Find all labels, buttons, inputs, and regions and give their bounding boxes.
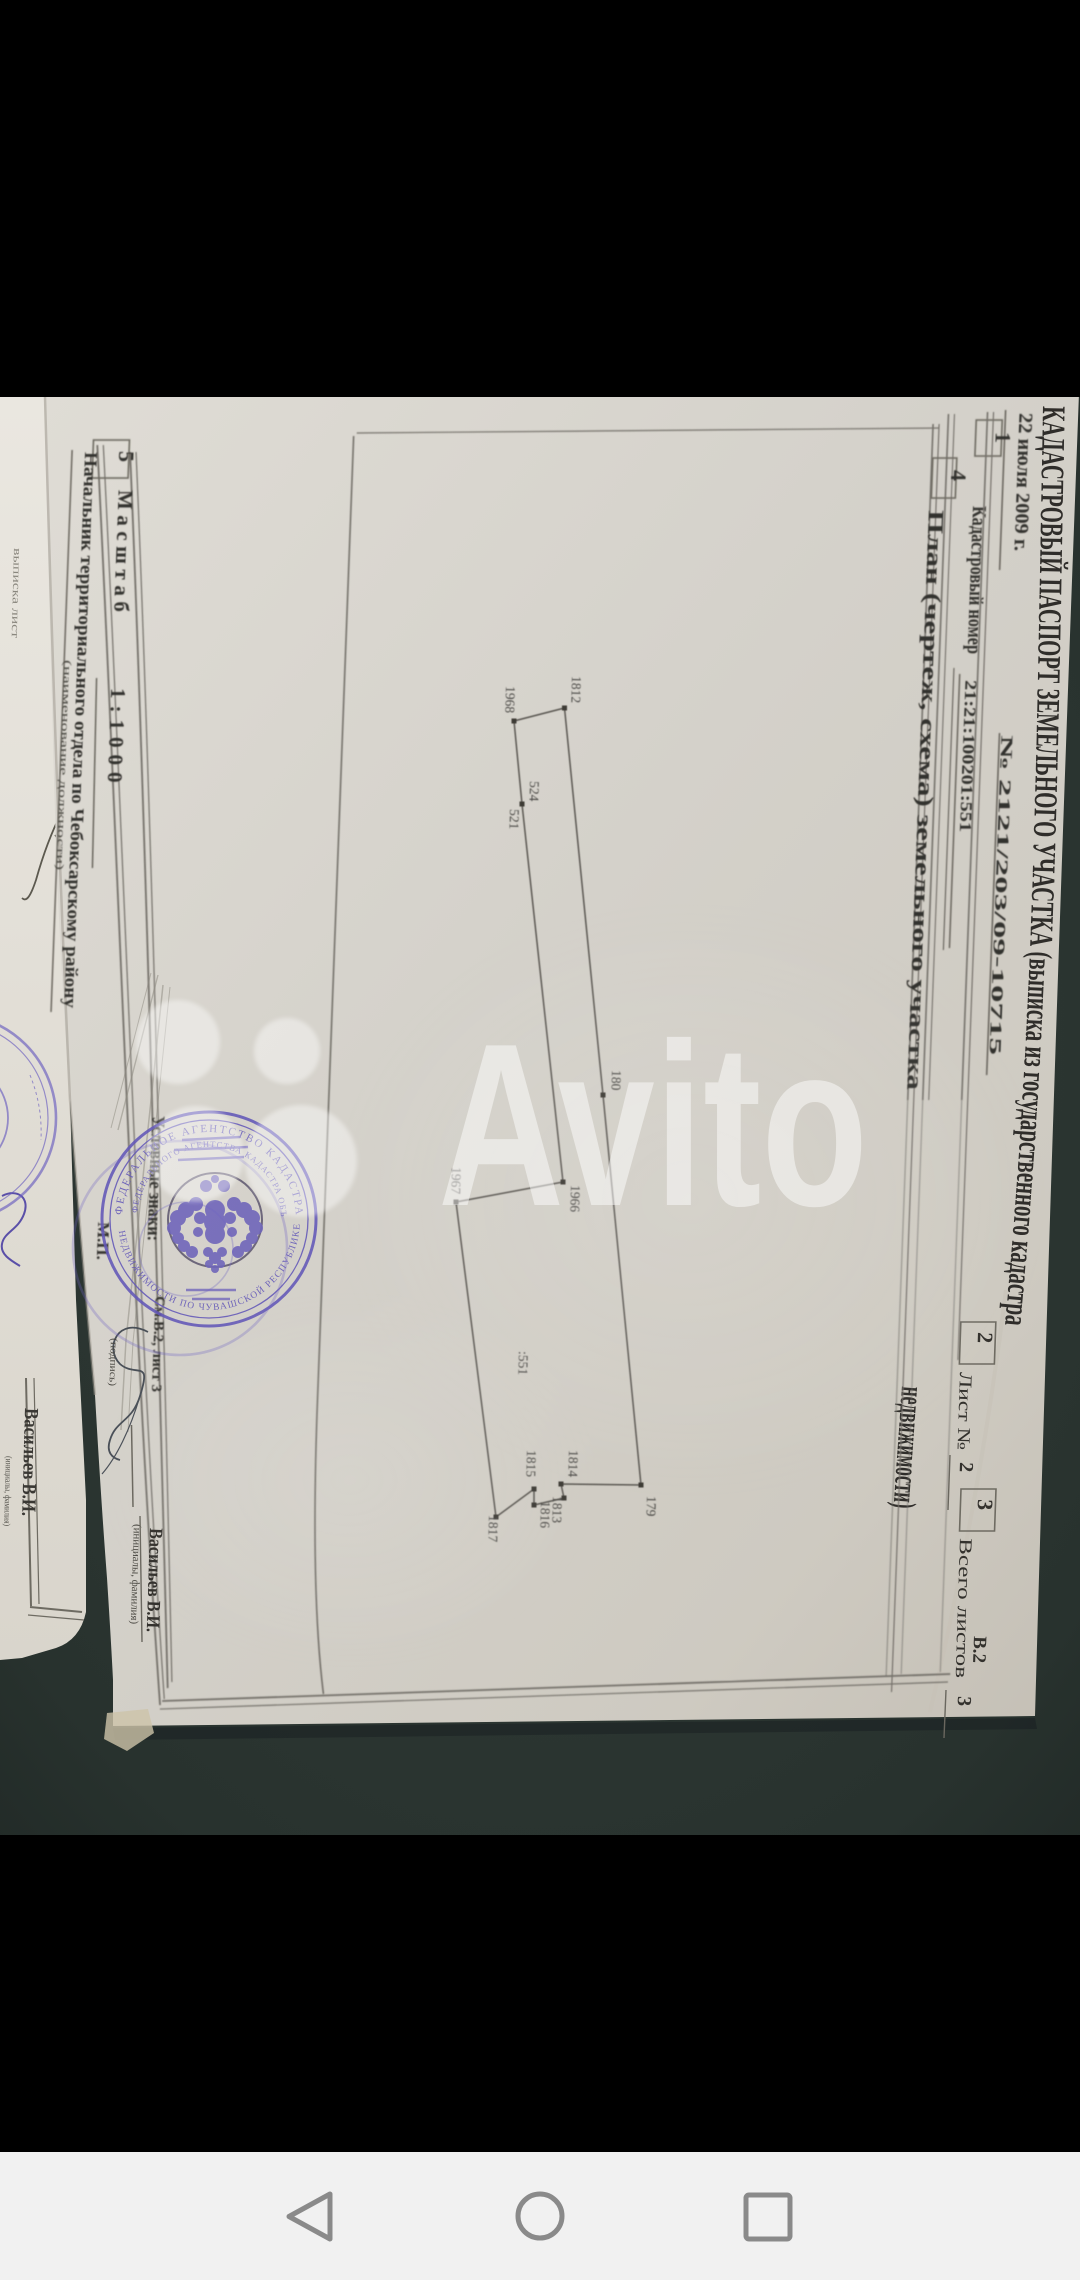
svg-text:2: 2	[955, 1462, 977, 1473]
svg-text:1:1000: 1:1000	[102, 688, 130, 789]
svg-text:Масштаб: Масштаб	[109, 490, 138, 617]
svg-text:Avito: Avito	[438, 996, 868, 1255]
svg-text:521: 521	[506, 809, 522, 830]
svg-text:(инициалы, фамилия): (инициалы, фамилия)	[2, 1456, 14, 1526]
svg-text:179: 179	[643, 1496, 659, 1517]
svg-text:(подпись): (подпись)	[106, 1338, 119, 1386]
svg-text:1812: 1812	[568, 676, 584, 703]
svg-text:Васильев В.И.: Васильев В.И.	[17, 1408, 42, 1517]
svg-text:1: 1	[990, 432, 1015, 443]
svg-text:выписка лист: выписка лист	[9, 548, 23, 639]
svg-text:3: 3	[953, 1696, 975, 1707]
svg-text:524: 524	[526, 781, 542, 802]
svg-text:5: 5	[114, 451, 139, 462]
svg-text:1968: 1968	[502, 686, 518, 714]
svg-text:4: 4	[946, 470, 971, 481]
svg-text:3: 3	[973, 1499, 998, 1511]
